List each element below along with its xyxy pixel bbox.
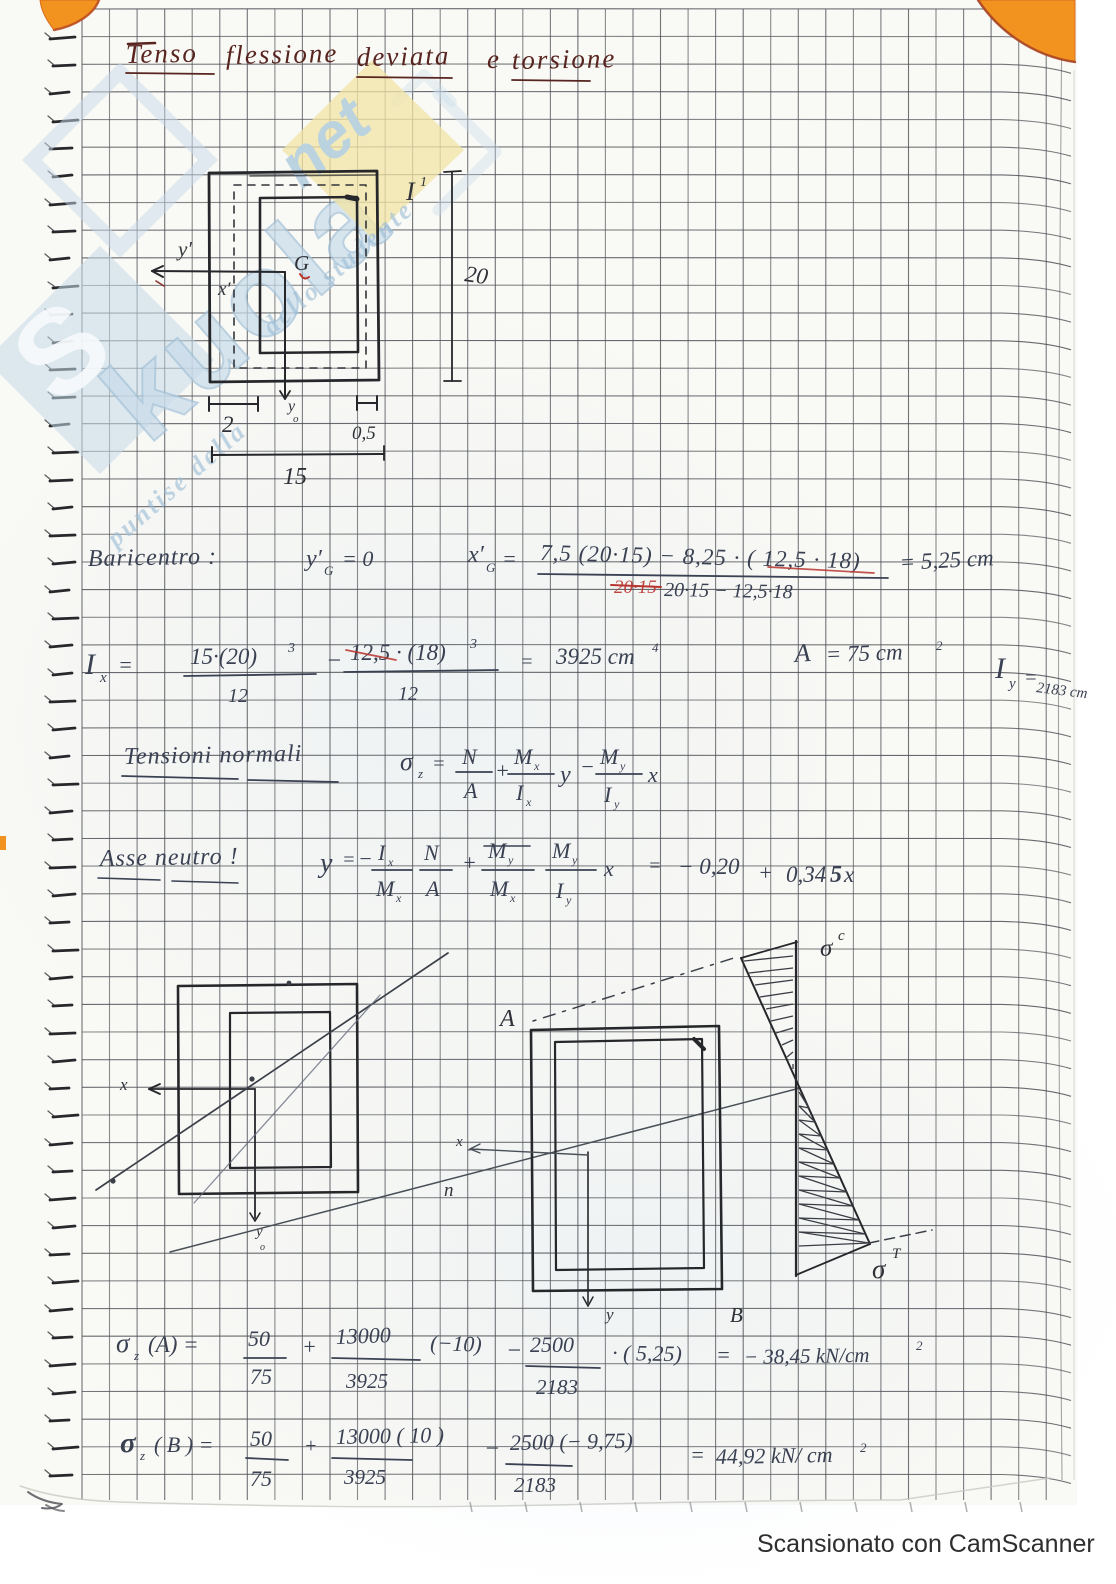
svg-text:+: + — [304, 1435, 318, 1457]
svg-text:=: = — [690, 1442, 705, 1467]
svg-text:M: M — [551, 838, 572, 863]
svg-text:+: + — [302, 1334, 317, 1359]
svg-text:B: B — [730, 1303, 743, 1327]
svg-text:σ: σ — [120, 1427, 137, 1459]
svg-text:y: y — [619, 759, 626, 773]
svg-text:x: x — [525, 795, 532, 809]
svg-text:20·15 − 12,5·18: 20·15 − 12,5·18 — [664, 579, 793, 603]
svg-text:x: x — [533, 759, 540, 773]
svg-text:=: = — [502, 546, 517, 571]
svg-text:σ: σ — [820, 935, 834, 962]
svg-text:0,34: 0,34 — [786, 862, 826, 887]
svg-text:=: = — [648, 855, 662, 877]
svg-text:y: y — [565, 893, 572, 907]
svg-text:G: G — [324, 563, 334, 578]
svg-text:−: − — [358, 846, 373, 871]
svg-text:x: x — [99, 670, 107, 686]
svg-text:torsione: torsione — [512, 43, 617, 75]
svg-text:deviata: deviata — [357, 40, 451, 72]
svg-text:N: N — [461, 744, 478, 769]
svg-text:12: 12 — [398, 683, 418, 705]
svg-text:3925: 3925 — [345, 1369, 388, 1393]
svg-text:−: − — [506, 1338, 522, 1364]
svg-text:A: A — [498, 1006, 515, 1032]
svg-text:· ( 5,25): · ( 5,25) — [612, 1340, 682, 1366]
svg-text:2500 (− 9,75): 2500 (− 9,75) — [510, 1428, 633, 1455]
svg-text:o: o — [260, 1242, 265, 1253]
svg-text:M: M — [487, 838, 508, 863]
svg-text:75: 75 — [250, 1364, 272, 1389]
svg-text:=: = — [432, 753, 446, 775]
svg-text:13000 ( 10 ): 13000 ( 10 ) — [336, 1422, 445, 1449]
svg-text:y: y — [254, 1224, 263, 1240]
svg-text:A: A — [791, 638, 811, 668]
svg-text:σ: σ — [116, 1328, 131, 1358]
svg-text:0,5: 0,5 — [352, 423, 376, 444]
svg-text:+: + — [495, 758, 510, 783]
svg-text:2: 2 — [860, 1440, 867, 1455]
svg-text:15·(20): 15·(20) — [190, 644, 257, 669]
svg-text:3925: 3925 — [343, 1465, 386, 1489]
svg-text:y: y — [604, 1305, 614, 1324]
svg-text:x: x — [603, 856, 614, 881]
svg-text:=: = — [118, 652, 133, 677]
svg-text:+: + — [462, 850, 477, 875]
svg-text:5: 5 — [830, 862, 842, 888]
svg-text:1: 1 — [420, 175, 427, 190]
svg-text:x: x — [455, 1134, 463, 1150]
svg-text:y: y — [1007, 676, 1016, 692]
svg-text:flessione: flessione — [226, 38, 339, 70]
svg-text:= 0: = 0 — [342, 546, 373, 571]
svg-text:4: 4 — [652, 640, 659, 655]
svg-text:x′: x′ — [467, 542, 485, 568]
svg-text:M: M — [375, 876, 396, 901]
svg-text:50: 50 — [250, 1426, 272, 1451]
svg-text:y′: y′ — [176, 237, 192, 261]
svg-text:2500: 2500 — [530, 1332, 574, 1357]
svg-text:= 75 cm: = 75 cm — [825, 639, 903, 667]
svg-text:σ: σ — [872, 1254, 887, 1284]
svg-text:x: x — [387, 855, 394, 869]
svg-text:− 0,20: − 0,20 — [678, 854, 740, 879]
svg-text:z: z — [139, 1448, 145, 1463]
svg-text:x: x — [395, 891, 402, 905]
svg-text:= 5,25 cm: = 5,25 cm — [899, 545, 994, 575]
svg-text:15: 15 — [283, 464, 307, 490]
svg-text:20: 20 — [463, 261, 490, 289]
svg-text:−: − — [580, 754, 595, 779]
svg-text:M: M — [599, 744, 620, 769]
svg-text:I: I — [405, 177, 416, 206]
svg-text:e: e — [487, 44, 499, 74]
svg-text:Tensioni normali: Tensioni normali — [124, 741, 303, 770]
svg-text:G: G — [486, 560, 496, 575]
svg-text:=: = — [520, 651, 534, 673]
svg-text:44,92 kN/ cm: 44,92 kN/ cm — [716, 1442, 833, 1469]
svg-text:x: x — [843, 862, 855, 887]
svg-text:75: 75 — [250, 1466, 272, 1491]
svg-text:x′: x′ — [217, 279, 231, 300]
svg-text:3925 cm: 3925 cm — [555, 644, 635, 669]
svg-text:−: − — [484, 1436, 500, 1462]
svg-text:(−10): (−10) — [430, 1330, 482, 1357]
svg-text:=: = — [1024, 667, 1038, 689]
svg-text:3: 3 — [287, 641, 295, 656]
svg-text:A: A — [424, 876, 440, 901]
svg-text:y: y — [571, 853, 578, 867]
svg-text:13000: 13000 — [335, 1322, 391, 1349]
svg-text:2183: 2183 — [536, 1375, 578, 1399]
svg-text:N: N — [423, 840, 440, 865]
svg-text:A: A — [462, 778, 478, 803]
svg-text:G: G — [294, 251, 309, 275]
svg-text:y: y — [507, 853, 514, 867]
svg-text:12,5 · (18): 12,5 · (18) — [350, 640, 446, 665]
svg-text:=: = — [342, 849, 356, 871]
svg-text:Scansionato con CamScanner: Scansionato con CamScanner — [757, 1530, 1095, 1558]
svg-text:M: M — [513, 744, 534, 769]
svg-text:( B ) =: ( B ) = — [154, 1432, 213, 1457]
svg-text:y: y — [613, 797, 620, 811]
svg-text:(A) =: (A) = — [148, 1332, 199, 1357]
svg-text:12: 12 — [228, 685, 248, 707]
svg-text:y: y — [558, 762, 571, 788]
svg-text:x: x — [509, 891, 516, 905]
svg-text:x: x — [647, 762, 658, 787]
svg-text:Asse neutro !: Asse neutro ! — [98, 844, 239, 872]
svg-text:2: 2 — [222, 412, 234, 437]
svg-text:x: x — [119, 1075, 128, 1094]
svg-text:− 38,45 kN/cm: − 38,45 kN/cm — [744, 1343, 870, 1369]
svg-text:o: o — [293, 413, 299, 425]
svg-text:−: − — [326, 648, 342, 674]
svg-text:50: 50 — [248, 1326, 270, 1351]
svg-text:2183: 2183 — [514, 1473, 556, 1497]
svg-text:z: z — [417, 766, 423, 781]
svg-text:σ: σ — [400, 747, 414, 776]
svg-text:+: + — [758, 860, 773, 885]
svg-text:y: y — [317, 848, 333, 879]
svg-text:z: z — [133, 1348, 139, 1363]
svg-text:2: 2 — [916, 1338, 923, 1353]
svg-text:Baricentro :: Baricentro : — [88, 544, 218, 572]
svg-text:=: = — [716, 1342, 731, 1367]
svg-text:n: n — [444, 1180, 454, 1201]
svg-text:M: M — [489, 876, 510, 901]
svg-text:3: 3 — [469, 637, 477, 652]
svg-text:2: 2 — [936, 638, 943, 653]
svg-text:c: c — [838, 928, 845, 944]
svg-text:y′: y′ — [304, 546, 323, 572]
